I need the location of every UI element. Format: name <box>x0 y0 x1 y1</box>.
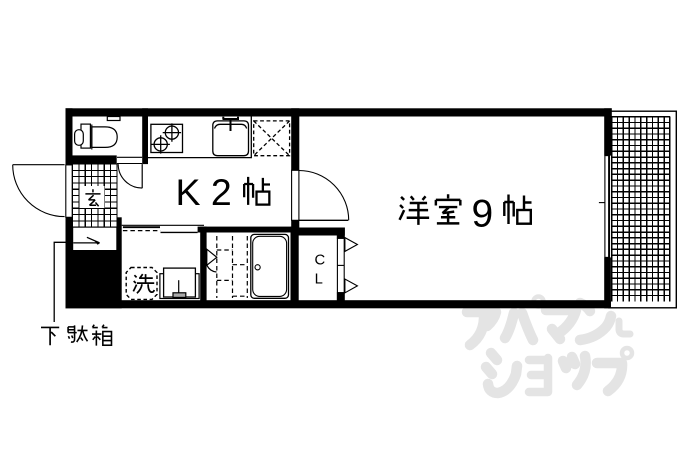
svg-text:9: 9 <box>472 193 494 236</box>
svg-text:L: L <box>315 272 323 288</box>
svg-text:C: C <box>314 252 325 268</box>
svg-text:K 2: K 2 <box>176 171 232 213</box>
